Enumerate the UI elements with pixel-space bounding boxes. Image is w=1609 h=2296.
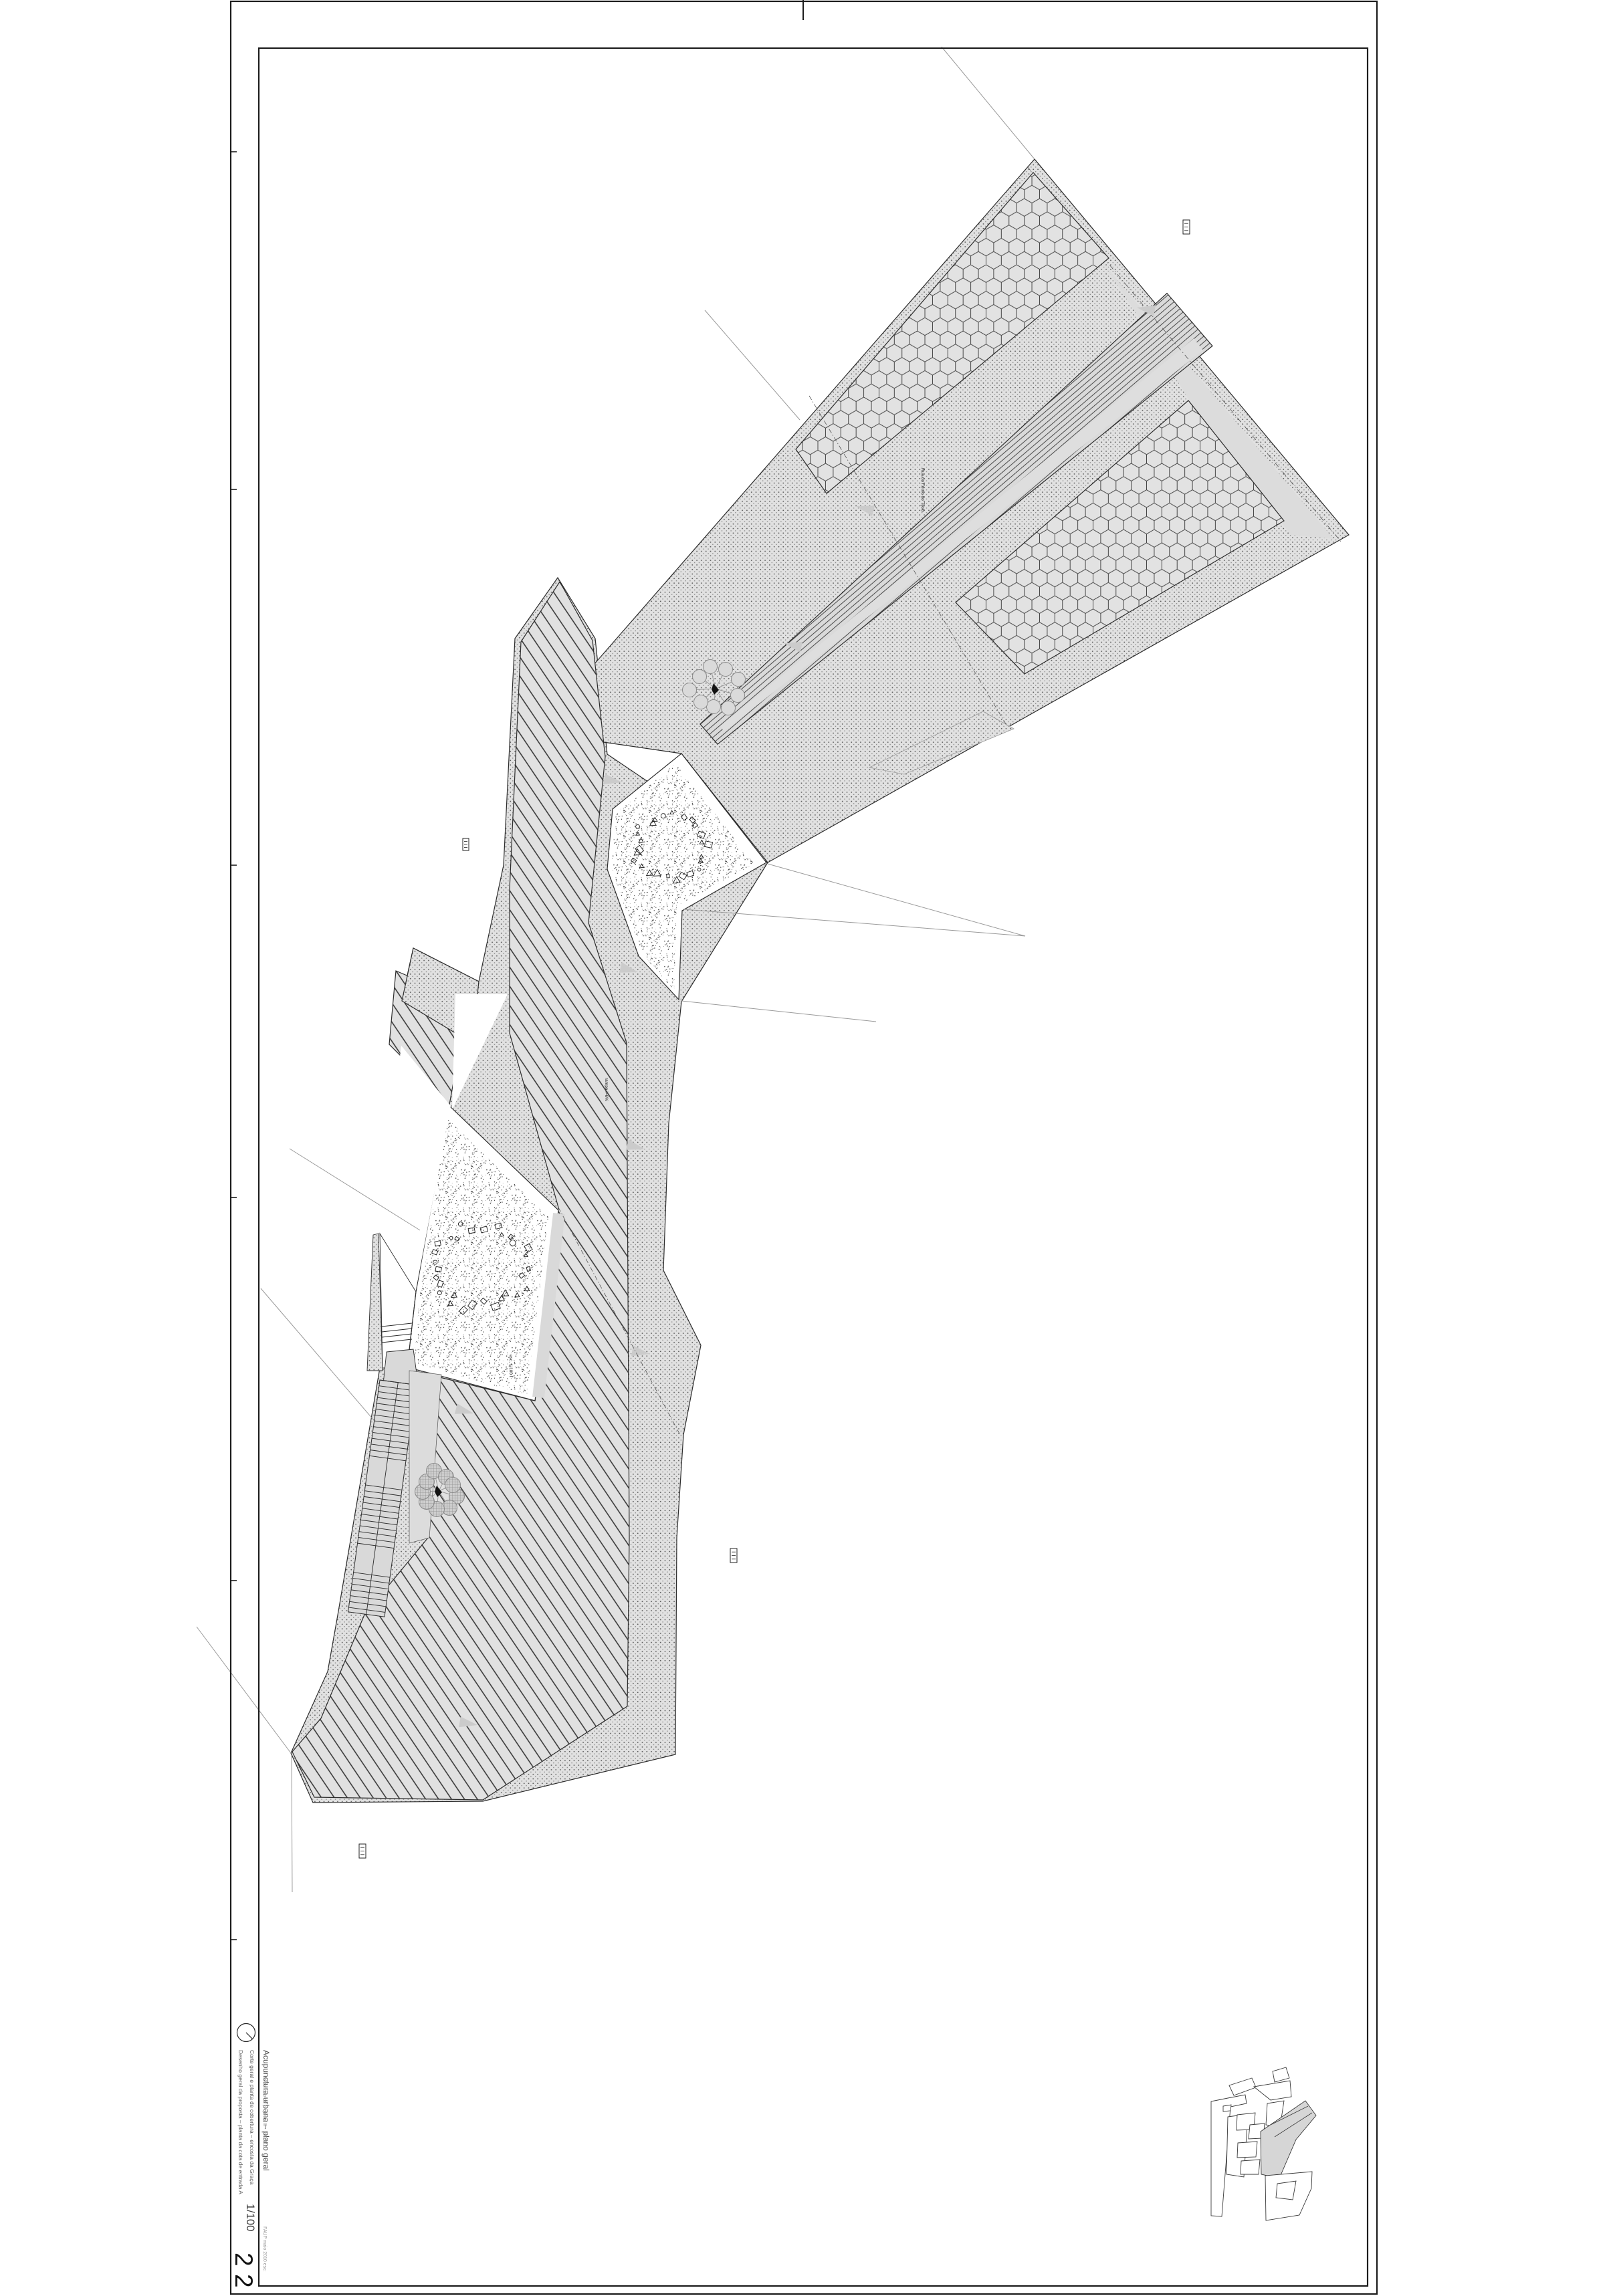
svg-text:esc. 1/100 t: esc. 1/100 t [508, 1355, 513, 1377]
svg-text:2: 2 [230, 2274, 257, 2288]
svg-text:1/100: 1/100 [244, 2204, 256, 2231]
svg-text:rampa i=6%: rampa i=6% [604, 1078, 609, 1101]
svg-text:seminario de projecto III - 20: seminario de projecto III - 2009/10 [262, 2077, 267, 2148]
svg-text:2: 2 [230, 2253, 257, 2267]
svg-text:Corte geral e planta de cobert: Corte geral e planta de cobertura – enco… [249, 2050, 255, 2185]
svg-text:Rua do Forno do Tijolo: Rua do Forno do Tijolo [920, 468, 925, 512]
svg-text:Desenho geral da proposta – pl: Desenho geral da proposta – planta da co… [237, 2050, 244, 2194]
svg-text:FAUP maio 2010 esc:: FAUP maio 2010 esc: [262, 2226, 267, 2272]
